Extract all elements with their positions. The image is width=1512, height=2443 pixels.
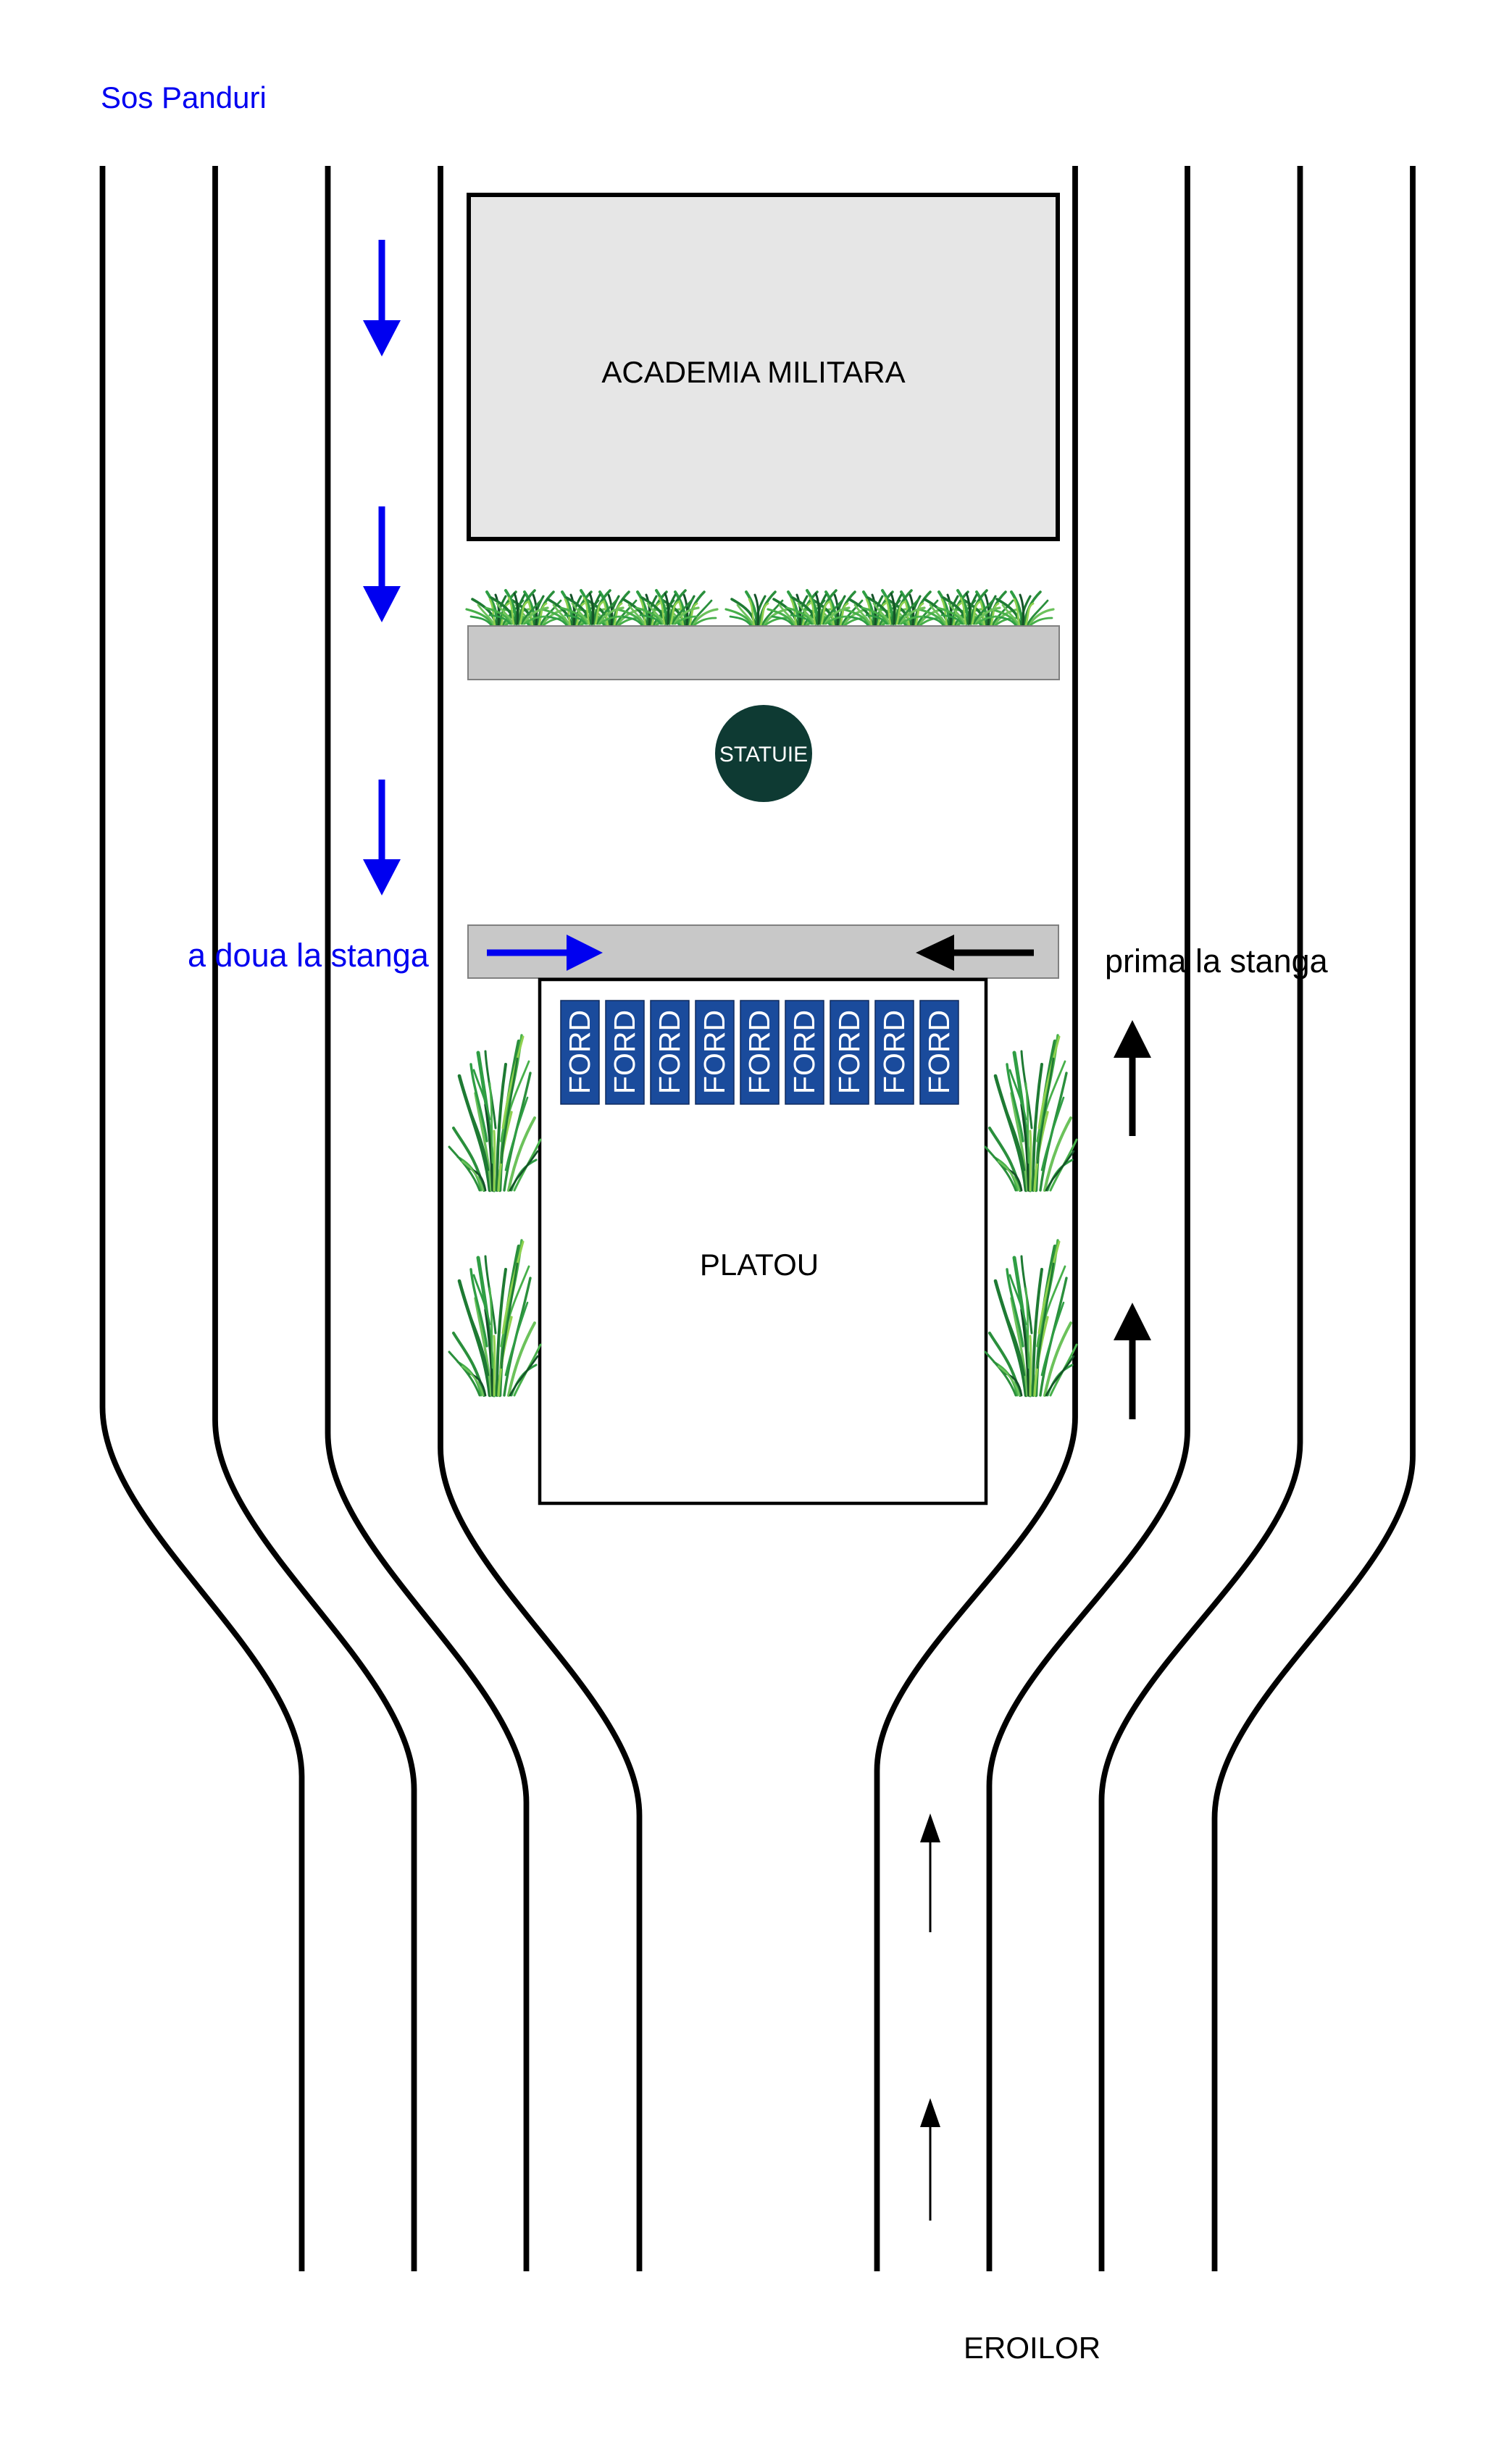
svg-text:FORD: FORD <box>832 1010 866 1094</box>
svg-text:FORD: FORD <box>788 1010 821 1094</box>
svg-text:FORD: FORD <box>698 1010 731 1094</box>
svg-text:ACADEMIA MILITARA: ACADEMIA MILITARA <box>601 355 905 389</box>
svg-text:STATUIE: STATUIE <box>719 743 808 767</box>
svg-text:FORD: FORD <box>653 1010 686 1094</box>
svg-text:Sos Panduri: Sos Panduri <box>101 80 267 114</box>
svg-text:prima la stanga: prima la stanga <box>1105 943 1329 980</box>
svg-text:FORD: FORD <box>877 1010 911 1094</box>
svg-text:a doua la stanga: a doua la stanga <box>188 937 430 974</box>
svg-text:FORD: FORD <box>743 1010 776 1094</box>
svg-text:FORD: FORD <box>608 1010 641 1094</box>
svg-text:EROILOR: EROILOR <box>964 2331 1100 2365</box>
svg-text:FORD: FORD <box>563 1010 596 1094</box>
svg-text:PLATOU: PLATOU <box>700 1248 819 1282</box>
svg-text:FORD: FORD <box>922 1010 956 1094</box>
